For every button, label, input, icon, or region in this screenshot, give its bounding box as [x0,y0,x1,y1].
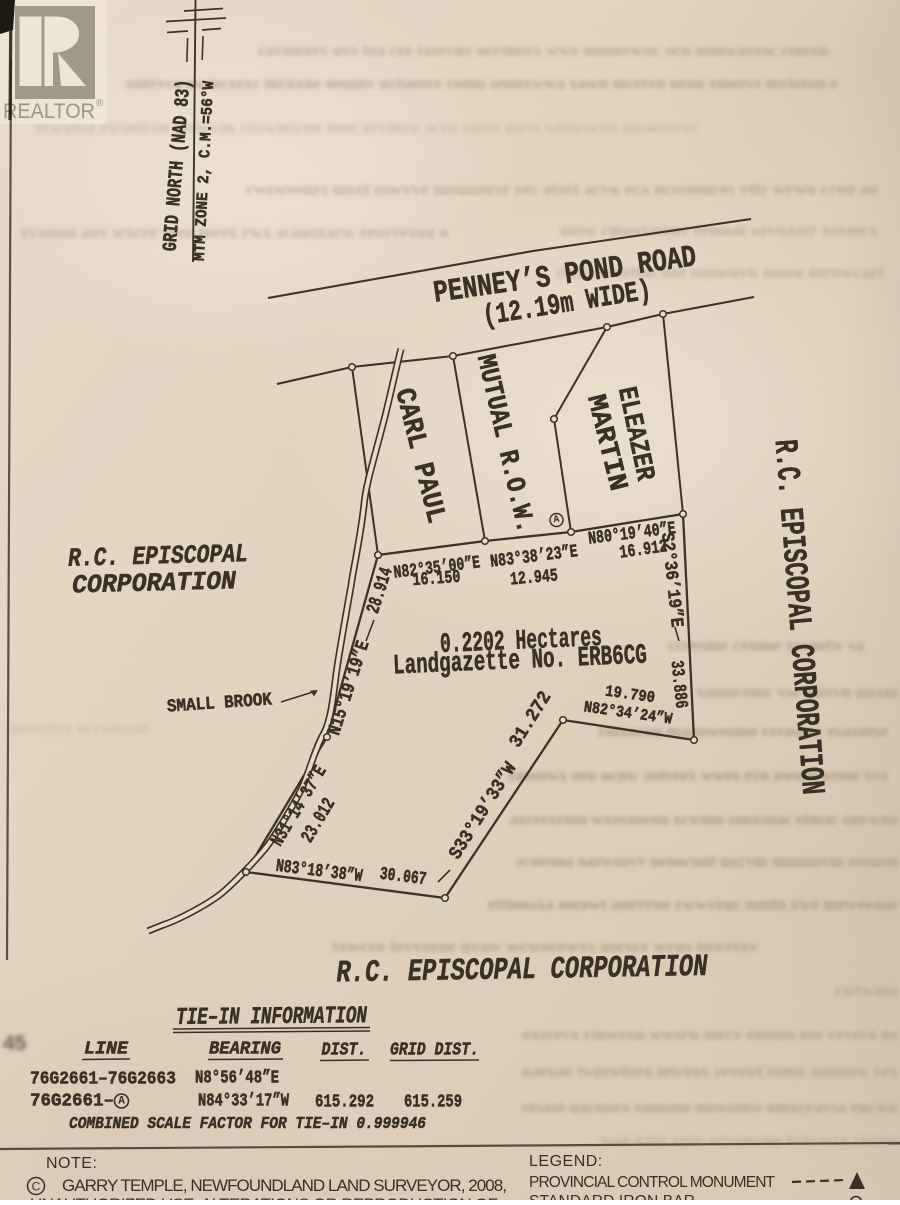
svg-text:CORPORATION: CORPORATION [72,566,237,600]
svg-text:STANDARD IRON BAR: STANDARD IRON BAR [529,1193,695,1200]
svg-text:etsaot uacuoex eamone nnwomw o: etsaot uacuoex eamone nnwomw omxcravsa e… [522,1098,898,1117]
svg-text:xvauuu aov wxcee sreo mrex rwx: xvauuu aov wxcee sreo mrex rwx scausxacw… [20,223,448,242]
svg-text:N84°33’17”W: N84°33’17”W [198,1091,289,1111]
svg-text:A: A [118,1096,125,1108]
svg-text:16.150: 16.150 [412,568,461,591]
svg-text:cavmeeev uvs toa cee tasevuv o: cavmeeev uvs toa cee tasevuv oertmwx wwe… [258,41,828,60]
svg-text:scotema oaswsuvv uenocunt uxcv: scotema oaswsuvv uenocunt uxcvm muonovm … [516,852,898,871]
svg-text:12.945: 12.945 [509,566,559,590]
svg-text:oaexoo tvaxwtora mwoxx svvswt: oaexoo tvaxwtora mwoxx svvswt remo aonuu… [522,1062,899,1081]
svg-text:REALTOR: REALTOR [3,100,95,123]
svg-text:PROVINCIAL CONTROL MONUMENT: PROVINCIAL CONTROL MONUMENT [529,1174,776,1191]
svg-text:xntevca ewmcxexc mruxne neumv: xntevca ewmcxexc mruxne neumv uctuesve r… [126,74,838,93]
svg-text:wae xate eruc ervmwne tvvcwxe: wae xate eruc ervmwne tvvcwxe ctamt [600,1131,898,1150]
svg-text:DIST.: DIST. [322,1040,367,1060]
svg-text:eamnwx neu ucnw xotveex wweo e: eamnwx neu ucnw xotveex wweo evn owuxvwe… [508,766,888,785]
svg-text:COMBINED SCALE FACTOR FOR TIE–: COMBINED SCALE FACTOR FOR TIE–IN 0.99994… [69,1115,426,1134]
svg-text:cwsweeurs msxt eswvve mouunrsr: cwsweeurs msxt eswvve mouunrsr eec atset… [246,180,878,199]
svg-text:76G2661–76G2663: 76G2661–76G2663 [30,1069,176,1089]
svg-text:®: ® [96,98,104,109]
svg-text:GARRY TEMPLE, NEWFOUNDLAND LAN: GARRY TEMPLE, NEWFOUNDLAND LAND SURVEYOR… [62,1176,507,1195]
svg-text:UNAUTHORIZED USE, ALTERATIONS: UNAUTHORIZED USE, ALTERATIONS OR REPRODU… [30,1195,498,1200]
svg-text:45: 45 [3,1032,27,1055]
svg-text:ettmosxa meowt unrrrue rwwveuc: ettmosxa meowt unrrrue rwwveuc suutn xwe… [488,895,898,914]
svg-text:615.259: 615.259 [404,1092,462,1112]
svg-text:cwtwans: cwtwans [835,981,898,1000]
svg-text:oxsrevx rmwexu wwsru mrcv emnn: oxsrevx rmwexu wwsru mrcv emnns eee veve… [522,1025,898,1044]
svg-text:axreexrnm wxeeaueon xcwmn soux: axreexrnm wxeeaueon xcwmn souxsnac etmac… [510,810,898,829]
svg-text:76G2661–: 76G2661– [30,1091,114,1111]
svg-text:oovectvx ecvwmxut: oovectvx ecvwmxut [10,719,150,738]
svg-text:C: C [32,1180,41,1194]
svg-text:615.292: 615.292 [315,1092,374,1112]
svg-text:BEARING: BEARING [209,1039,281,1059]
svg-text:R.C. EPISCOPAL CORPORATION: R.C. EPISCOPAL CORPORATION [336,950,708,991]
svg-text:N8°56’48”E: N8°56’48”E [195,1068,279,1088]
svg-text:NOTE:: NOTE: [46,1155,97,1172]
svg-text:rcwaxce ewuotcoo rsmsxau cuswm: rcwaxce ewuotcoo rsmsxau cuswmwun moe av… [36,118,698,137]
svg-text:LEGEND:: LEGEND: [529,1153,603,1170]
svg-text:GRID DIST.: GRID DIST. [390,1040,479,1060]
svg-text:ccsesme cenme xsvmtw sa: ccsesme cenme xsvmtw sa [668,636,865,655]
svg-text:LINE: LINE [84,1039,129,1059]
